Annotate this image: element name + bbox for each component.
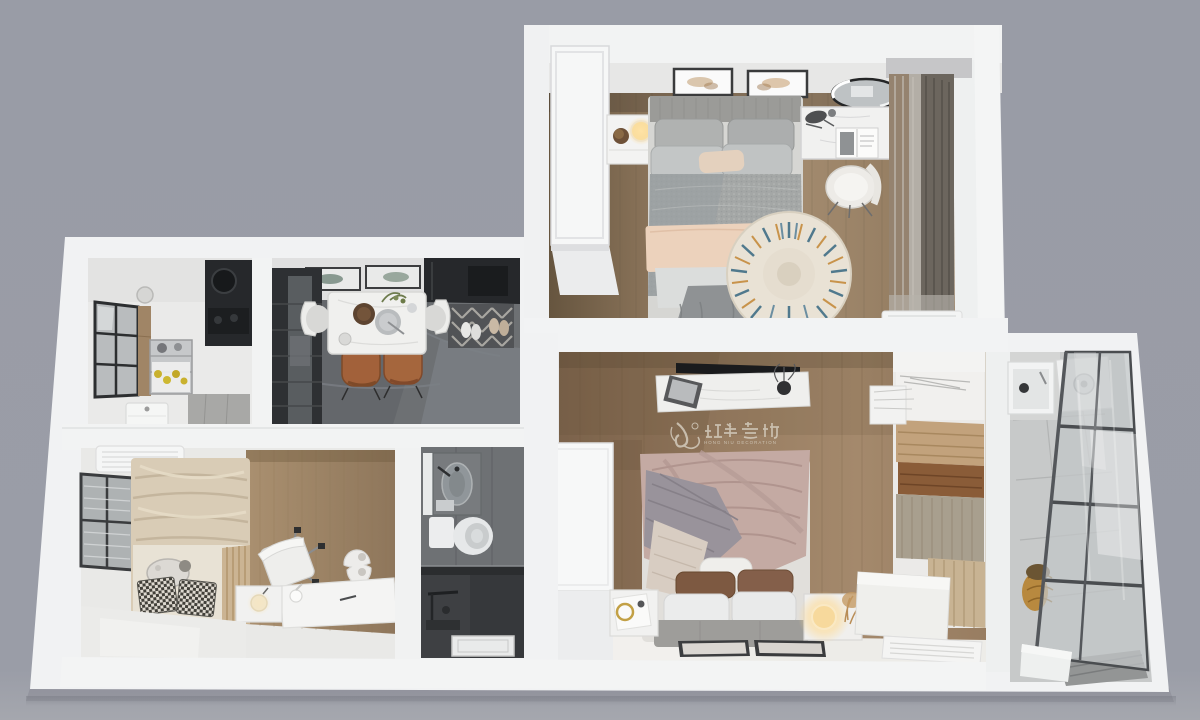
svg-text:HONG NIU DECORATION: HONG NIU DECORATION [704, 440, 777, 445]
